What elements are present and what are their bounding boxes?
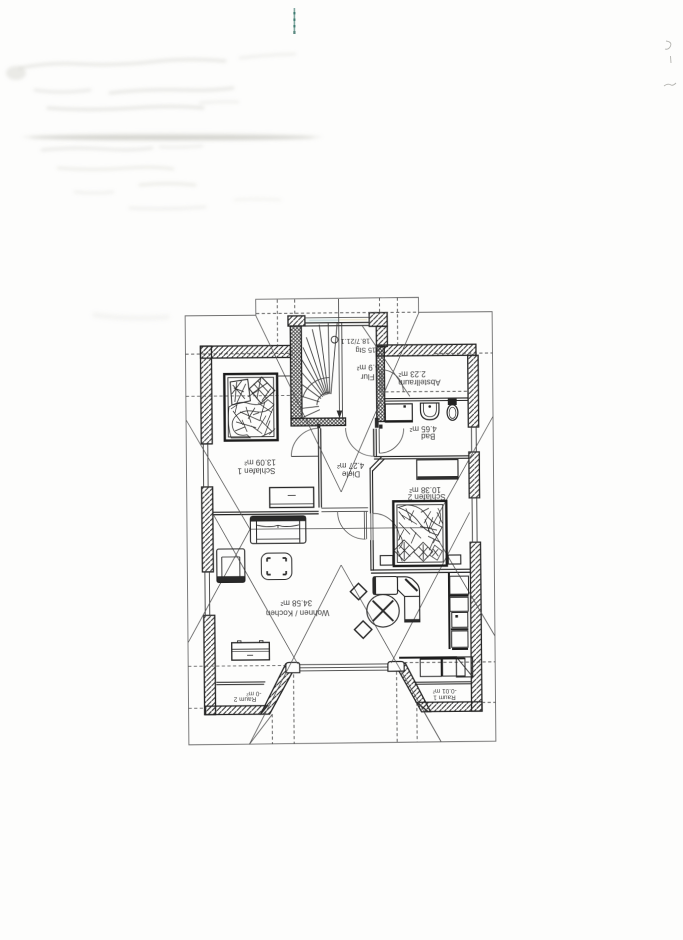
svg-text:10.38 m²: 10.38 m² [409,485,441,494]
svg-text:4.27 m²: 4.27 m² [337,461,365,470]
svg-text:15 Stg: 15 Stg [355,345,375,352]
svg-text:Flur: Flur [360,372,374,381]
svg-text:2.23 m²: 2.23 m² [398,369,426,378]
svg-text:4.65 m²: 4.65 m² [409,424,437,433]
svg-text:Schlafen 1: Schlafen 1 [237,466,275,475]
svg-text:6.9 m²: 6.9 m² [356,363,379,372]
svg-text:34.58 m²: 34.58 m² [280,598,312,607]
svg-text:13.09 m²: 13.09 m² [244,457,276,466]
svg-text:Wohnen / Kochen: Wohnen / Kochen [266,608,330,618]
svg-text:-0.01 m²: -0.01 m² [433,687,457,694]
svg-text:-0 m²: -0 m² [246,690,261,697]
svg-text:18.7/21.1: 18.7/21.1 [341,337,370,344]
